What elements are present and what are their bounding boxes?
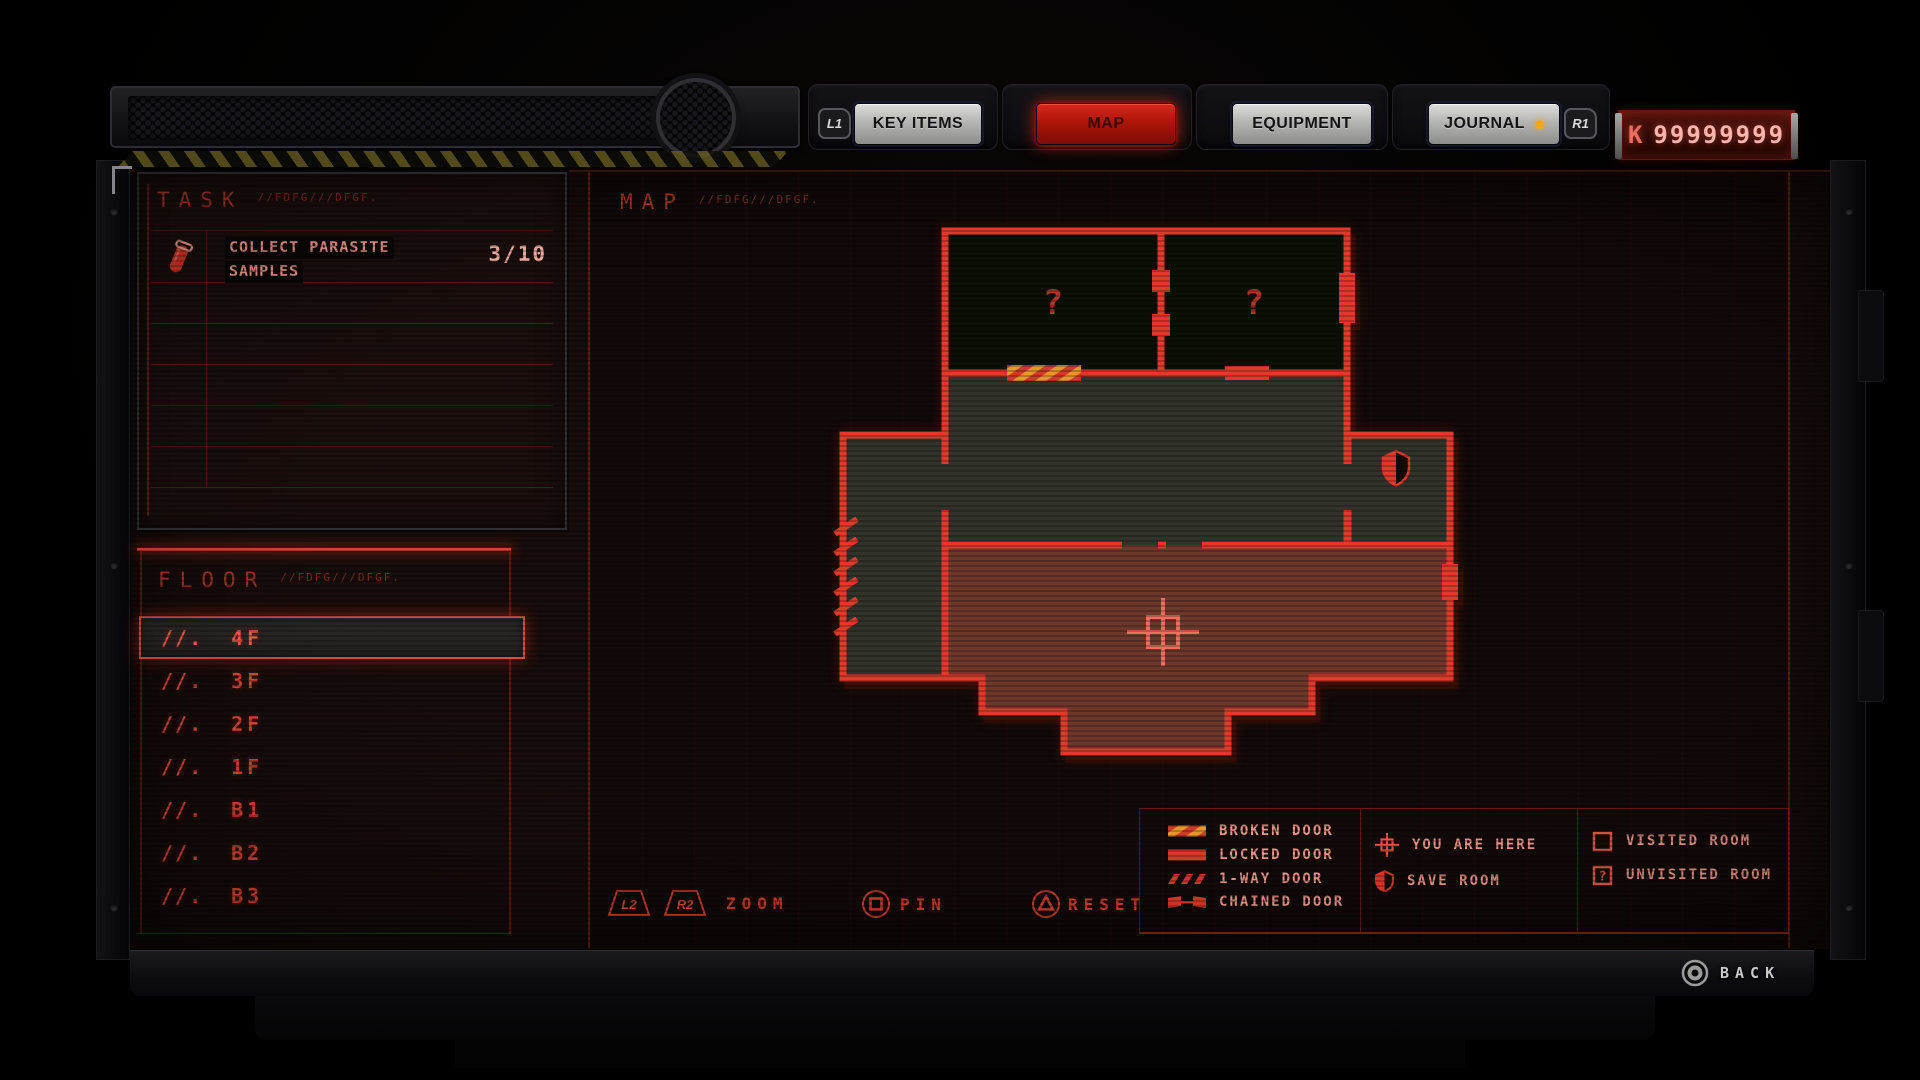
right-hinge-top [1858,290,1884,382]
legend-broken-door: BROKEN DOOR [1168,821,1334,841]
task-table-line [151,405,553,406]
legend-label: BROKEN DOOR [1219,823,1334,839]
task-table-line [151,364,553,365]
zoom-control[interactable]: L2 R2 ZOOM [606,888,789,918]
bottom-command-bar [130,950,1814,996]
floor-item-2f[interactable]: //. 2F [141,702,507,745]
r1-label: R1 [1572,116,1589,131]
doorway-south-2b [1166,545,1202,551]
chained-door-marker-top [1152,270,1170,292]
right-hinge-bottom [1858,610,1884,702]
reset-label: RESET [1068,895,1146,914]
currency-amount: 99999999 [1653,121,1785,149]
floor-label: B2 [231,841,263,865]
room-west [843,435,945,678]
legend-divider [1577,809,1578,932]
svg-text:L2: L2 [621,897,637,912]
task-label-line1: COLLECT PARASITE [225,237,394,259]
task-table-line [151,323,553,324]
triangle-button-icon [1030,888,1062,920]
legend-one-way-door: 1-WAY DOOR [1168,869,1323,889]
r1-shoulder-button[interactable]: R1 [1564,108,1597,139]
map-screen: L1 KEY ITEMS MAP EQUIPMENT JOURNAL R1 K … [0,0,1920,1080]
tab-equipment[interactable]: EQUIPMENT [1232,103,1372,145]
chained-door-marker-bottom [1152,314,1170,336]
back-label: BACK [1720,964,1780,982]
floor-prefix: //. [161,755,203,779]
floor-prefix: //. [161,626,203,650]
tab-journal[interactable]: JOURNAL [1428,103,1560,145]
floor-label: B3 [231,884,263,908]
map-legend: BROKEN DOOR LOCKED DOOR 1-WAY DOOR CHAIN… [1139,808,1789,934]
task-item[interactable]: COLLECT PARASITE SAMPLES [225,235,435,283]
back-control[interactable]: BACK [1680,958,1780,988]
save-room-icon [1375,870,1394,892]
honeycomb-mesh [128,96,703,140]
currency-display: K 99999999 [1618,110,1795,160]
floor-prefix: //. [161,798,203,822]
floor-item-b2[interactable]: //. B2 [141,831,507,874]
doorway-south-2 [1166,540,1202,546]
unknown-room-mark-right: ? [1244,283,1264,323]
legend-label: YOU ARE HERE [1412,837,1537,853]
doorway-south-1 [1122,540,1158,546]
l1-label: L1 [827,116,842,131]
room-current [945,545,1450,752]
map-panel-annotation: //FDFG///DFGF. [699,193,820,206]
l2-trigger-icon[interactable]: L2 [606,888,652,918]
left-frame-rail [96,160,130,960]
legend-locked-door: LOCKED DOOR [1168,845,1334,865]
floor-item-1f[interactable]: //. 1F [141,745,507,788]
save-room-marker [1383,451,1409,486]
doorway-south-1b [1122,545,1158,551]
svg-text:?: ? [1599,869,1607,884]
unknown-room-mark-left: ? [1043,283,1063,323]
one-way-door-icon [1168,873,1206,885]
legend-label: 1-WAY DOOR [1219,871,1323,887]
floor-bottom-line [137,933,511,934]
tab-equipment-label: EQUIPMENT [1252,115,1352,133]
tab-journal-label: JOURNAL [1444,115,1525,133]
legend-label: CHAINED DOOR [1219,894,1344,910]
floor-panel-annotation: //FDFG///DFGF. [280,571,401,584]
visited-room-icon [1592,831,1613,852]
task-panel: TASK //FDFG///DFGF. COLLECT PARASITE SAM… [137,172,567,530]
legend-label: VISITED ROOM [1626,833,1751,849]
task-panel-annotation: //FDFG///DFGF. [258,191,379,204]
doorway-save-hall [1342,464,1354,510]
legend-unvisited-room: ? UNVISITED ROOM [1592,865,1772,885]
circle-button-icon [1680,958,1710,988]
floor-prefix: //. [161,712,203,736]
hazard-stripe-band [118,151,788,167]
honeycomb-circle [656,78,736,158]
l1-shoulder-button[interactable]: L1 [818,108,851,139]
task-table-line [151,487,553,488]
floor-label: 3F [231,669,263,693]
floor-label: 1F [231,755,263,779]
legend-label: UNVISITED ROOM [1626,867,1772,883]
floor-prefix: //. [161,669,203,693]
pin-control[interactable]: PIN [860,888,947,920]
svg-text:R2: R2 [677,897,694,912]
legend-save-room: SAVE ROOM [1375,871,1501,891]
broken-door-marker [1007,365,1081,381]
legend-you-are-here: YOU ARE HERE [1375,835,1537,855]
journal-notification-dot [1535,120,1544,129]
floor-label: 4F [231,626,263,650]
floor-panel-glow-line [137,548,511,551]
square-button-icon [860,888,892,920]
floor-item-b1[interactable]: //. B1 [141,788,507,831]
floor-right-line [509,550,511,934]
floor-item-3f[interactable]: //. 3F [141,659,507,702]
floor-label: 2F [231,712,263,736]
floor-item-4f[interactable]: //. 4F [139,616,525,659]
task-table-line [151,230,553,231]
legend-divider [1360,809,1361,932]
you-are-here-icon [1375,833,1399,857]
floor-panel-title: FLOOR [158,568,266,592]
header-vent-bar [110,86,800,148]
floor-item-b3[interactable]: //. B3 [141,874,507,917]
legend-label: LOCKED DOOR [1219,847,1334,863]
room-central-hall [945,373,1347,545]
tab-map[interactable]: MAP [1036,103,1176,145]
locked-door-marker-current [1442,564,1458,600]
locked-door-icon [1168,849,1206,861]
r2-trigger-icon[interactable]: R2 [662,888,708,918]
broken-door-icon [1168,825,1206,837]
zoom-label: ZOOM [726,894,789,913]
right-frame-rail [1830,160,1866,960]
locked-door-marker-east [1339,273,1355,323]
floor-prefix: //. [161,884,203,908]
specimen-vial-icon [163,236,197,282]
task-table-divider [206,230,207,487]
map-panel-title: MAP [620,190,685,214]
footer-plate-lower [455,1040,1465,1068]
doorway-west-hall [939,464,951,510]
pin-label: PIN [900,895,947,914]
task-panel-title: TASK [157,188,244,212]
legend-chained-door: CHAINED DOOR [1168,892,1344,912]
footer-plate [255,996,1655,1040]
legend-visited-room: VISITED ROOM [1592,831,1751,851]
task-accent-line [147,184,149,516]
unvisited-room-icon: ? [1592,865,1613,886]
task-label-line2: SAMPLES [225,261,303,283]
tab-map-label: MAP [1087,115,1124,133]
floor-label: B1 [231,798,263,822]
chained-door-icon [1168,896,1206,908]
tab-key-items-label: KEY ITEMS [873,115,963,133]
task-table-line [151,446,553,447]
reset-control[interactable]: RESET [1030,888,1146,920]
locked-door-marker-south [1225,366,1269,380]
currency-symbol: K [1628,121,1642,149]
tab-key-items[interactable]: KEY ITEMS [854,103,982,145]
legend-label: SAVE ROOM [1407,873,1501,889]
corner-bracket [112,166,132,194]
task-progress-count: 3/10 [488,242,547,266]
floor-prefix: //. [161,841,203,865]
